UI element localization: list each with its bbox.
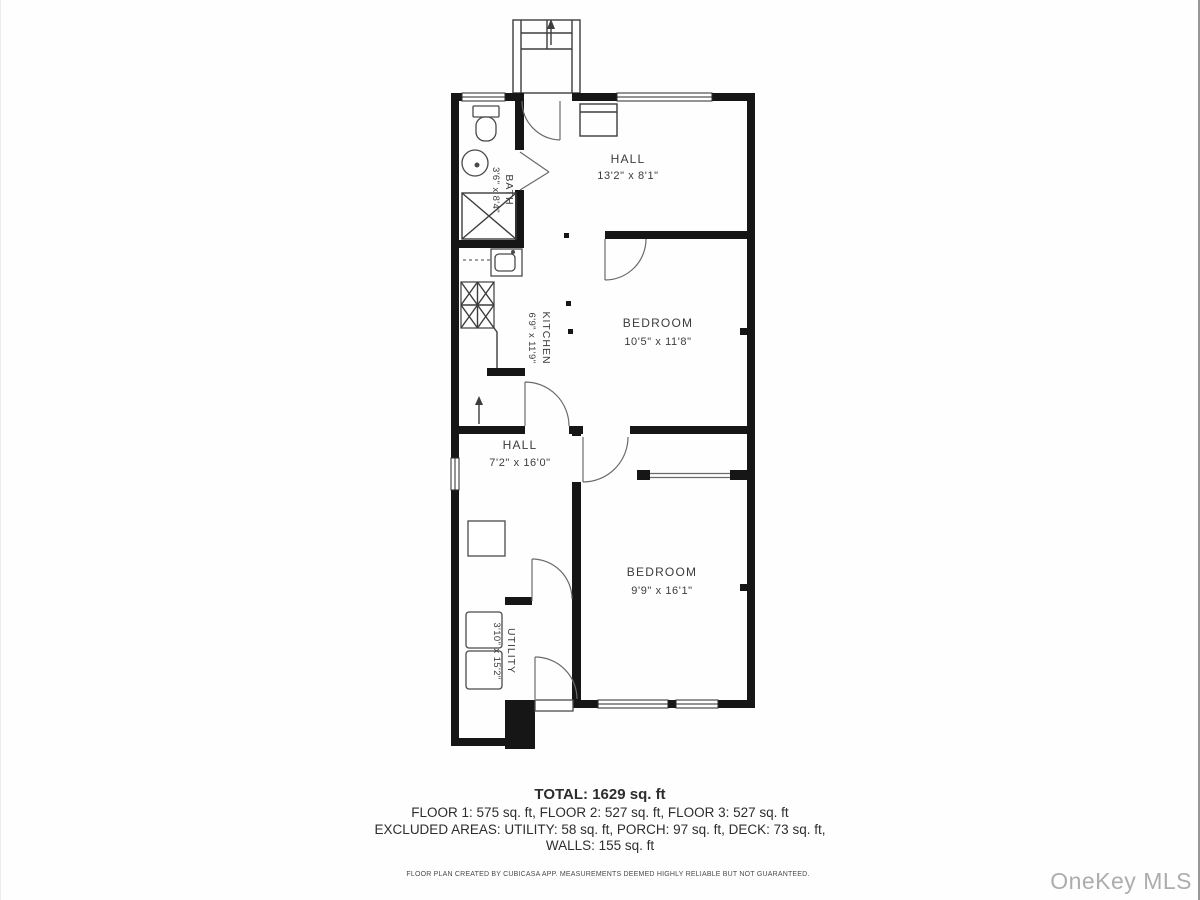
svg-text:3'6" x 8'4": 3'6" x 8'4" — [490, 167, 501, 213]
floor-areas-text: FLOOR 1: 575 sq. ft, FLOOR 2: 527 sq. ft… — [0, 805, 1200, 822]
bedroom2-door — [583, 437, 628, 482]
room-label-bath: BATH 3'6" x 8'4" — [490, 167, 515, 213]
svg-text:BATH: BATH — [503, 174, 515, 205]
bedroom1-door — [605, 239, 646, 280]
svg-text:UTILITY: UTILITY — [505, 628, 517, 674]
svg-text:KITCHEN: KITCHEN — [540, 311, 552, 364]
room-label-hall2: HALL — [503, 438, 538, 452]
bath-door — [520, 152, 549, 190]
room-dims-hall2: 7'2" x 16'0" — [489, 457, 550, 469]
closet-sliding-door — [650, 474, 730, 478]
fixtures — [461, 104, 617, 711]
room-label-bedroom2: BEDROOM — [627, 565, 697, 579]
room-dims-bedroom2: 9'9" x 16'1" — [631, 585, 692, 597]
room-label-kitchen: KITCHEN 6'9" x 11'9" — [526, 311, 552, 364]
doors — [520, 101, 730, 699]
kitchen-sink-icon — [463, 249, 522, 276]
left-edge-border — [0, 0, 1, 900]
porch-step — [535, 700, 573, 711]
room-dims-bedroom1: 10'5" x 11'8" — [624, 336, 691, 348]
walls-area-text: WALLS: 155 sq. ft — [0, 838, 1200, 855]
hall-closet — [580, 104, 617, 136]
svg-text:6'9" x 11'9": 6'9" x 11'9" — [526, 313, 537, 364]
stove-icon — [461, 282, 497, 368]
deck-stairs — [513, 19, 580, 93]
floor-plan-page: BATH 3'6" x 8'4" HALL 13'2" x 8'1" KITCH… — [0, 0, 1200, 900]
entry-door — [522, 101, 560, 140]
total-area-text: TOTAL: 1629 sq. ft — [0, 786, 1200, 803]
stairs-up-arrow-icon — [547, 19, 555, 45]
excluded-areas-text: EXCLUDED AREAS: UTILITY: 58 sq. ft, PORC… — [0, 822, 1200, 839]
utility-exit-door — [535, 657, 577, 699]
onekey-mls-watermark: OneKey MLS — [1050, 868, 1192, 895]
area-summary: TOTAL: 1629 sq. ft FLOOR 1: 575 sq. ft, … — [0, 786, 1200, 855]
water-heater — [468, 521, 505, 556]
disclaimer-text: FLOOR PLAN CREATED BY CUBICASA APP. MEAS… — [0, 871, 1200, 878]
stairs-arrow-icon — [475, 396, 483, 424]
kitchen-door — [525, 382, 569, 426]
room-dims-hall1: 13'2" x 8'1" — [597, 170, 658, 182]
hall-door — [532, 559, 572, 601]
bathroom-sink-icon — [462, 150, 488, 176]
room-label-utility: UTILITY 3'10" x 15'2" — [491, 622, 517, 679]
room-label-hall1: HALL — [611, 152, 646, 166]
svg-text:3'10" x 15'2": 3'10" x 15'2" — [491, 622, 502, 679]
porch-post-block — [505, 700, 535, 749]
toilet-icon — [473, 106, 499, 141]
floor-plan-svg: BATH 3'6" x 8'4" HALL 13'2" x 8'1" KITCH… — [0, 0, 1200, 770]
room-label-bedroom1: BEDROOM — [623, 316, 693, 330]
